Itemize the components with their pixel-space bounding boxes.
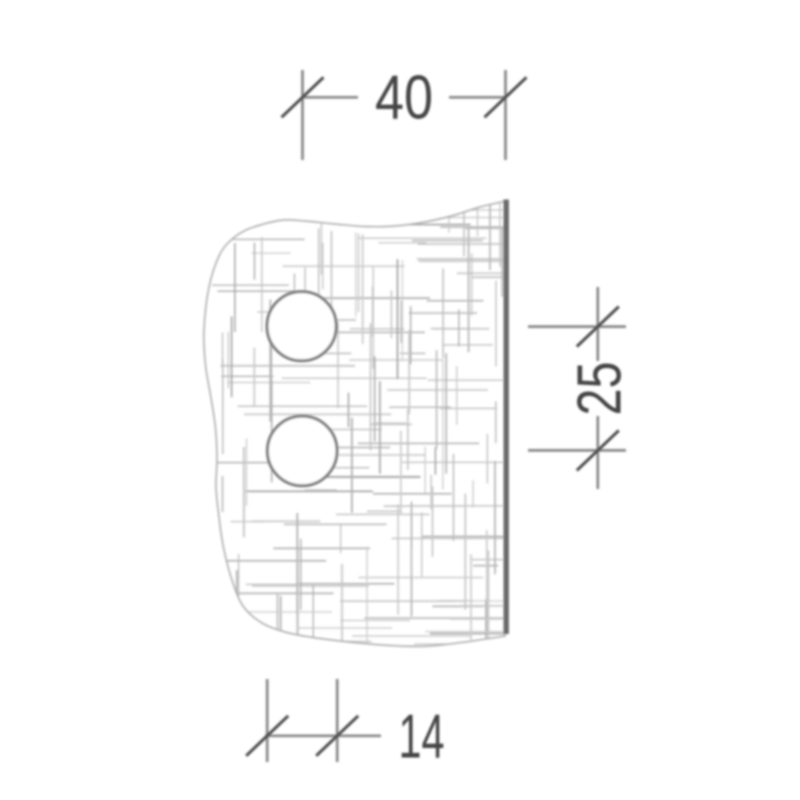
svg-text:14: 14 xyxy=(399,703,445,772)
svg-text:40: 40 xyxy=(375,64,433,133)
svg-text:25: 25 xyxy=(566,362,635,416)
